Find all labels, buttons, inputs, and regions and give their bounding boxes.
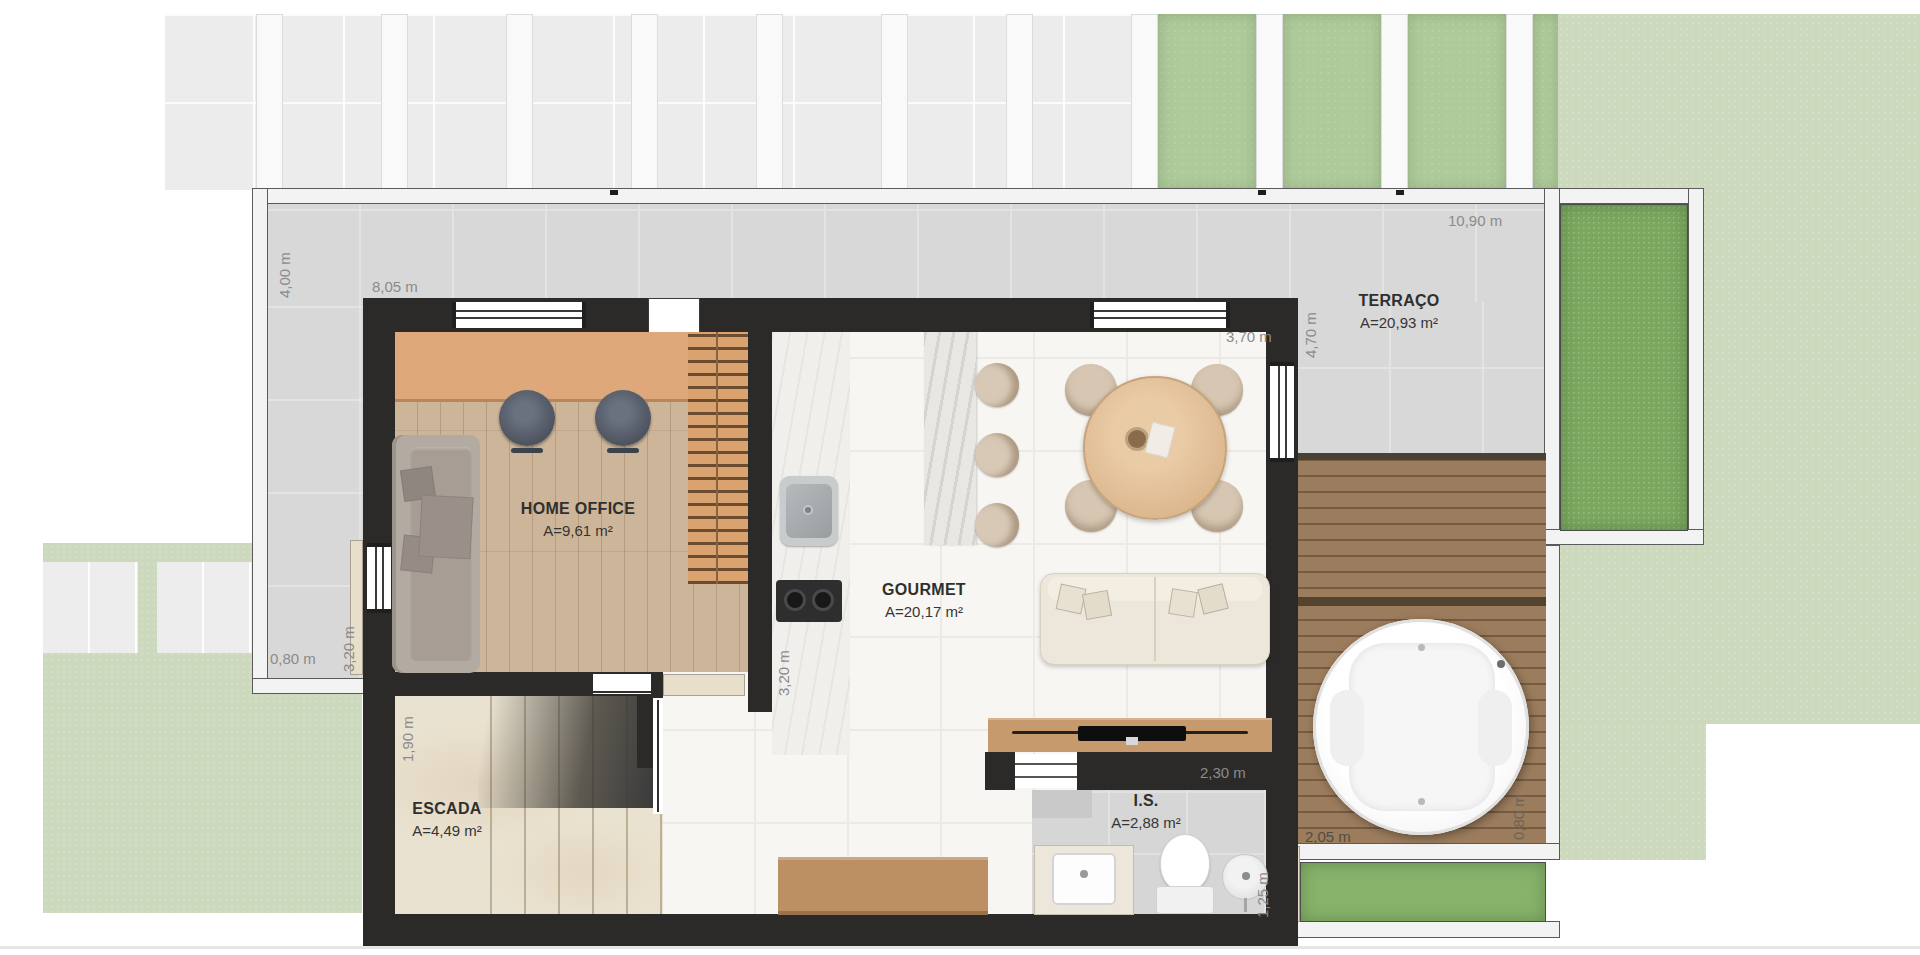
dim-front-wall: 8,05 m [372, 278, 418, 295]
office-chair-base [511, 448, 543, 453]
fence-pillar [256, 14, 283, 190]
stair-descent-shadow [478, 696, 663, 808]
toilet-tank [1156, 886, 1214, 914]
jacuzzi-seat-well [1349, 643, 1495, 811]
fence-pillar [631, 14, 658, 190]
dim-terrace-right: 4,70 m [1302, 296, 1319, 358]
glass-door-pane [657, 700, 659, 812]
room-area: A=2,88 m² [1111, 814, 1181, 831]
hall-sideboard [778, 857, 988, 915]
cooktop-burner [784, 589, 806, 611]
grass-frame-right [1688, 188, 1704, 545]
living-sofa-split [1154, 577, 1156, 661]
dim-escada-left: 1,90 m [399, 700, 416, 762]
deck-seam [1298, 597, 1546, 606]
lot-frame-top [252, 188, 1704, 204]
grass-panel [1560, 204, 1688, 531]
wall-bathroom-top-b [1077, 752, 1298, 790]
shower-knob [1242, 872, 1250, 880]
door-deck-access [1270, 362, 1294, 462]
fence-pillar [1381, 14, 1408, 190]
door-leaf-escada [593, 691, 651, 693]
sink-faucet [1080, 870, 1088, 878]
office-chair [595, 390, 651, 446]
fence-pillar [756, 14, 783, 190]
lot-frame-mid [1544, 188, 1560, 545]
room-label-home-office: HOME OFFICE A=9,61 m² [521, 500, 635, 539]
dim-terrace-left: 4,00 m [276, 218, 293, 298]
bar-stool [975, 433, 1019, 477]
room-area: A=9,61 m² [521, 522, 635, 539]
wall-kitchen-divider [748, 332, 772, 712]
bathroom-entry-step [1032, 790, 1092, 818]
survey-tick [610, 190, 618, 195]
office-chair [499, 390, 555, 446]
vanity-sink [1052, 853, 1116, 905]
deck-frame-right [1544, 545, 1560, 860]
dim-is-width: 2,30 m [1200, 764, 1246, 781]
sofa-blanket [418, 495, 473, 560]
fence-pillar [381, 14, 408, 190]
hedge-block [1158, 14, 1256, 190]
survey-tick [1258, 190, 1266, 195]
room-name: TERRAÇO [1358, 292, 1439, 310]
fence-pillar [1131, 14, 1158, 190]
fence-pillar [1506, 14, 1533, 190]
room-name: HOME OFFICE [521, 500, 635, 518]
dim-kitchen: 3,20 m [775, 630, 792, 696]
room-label-gourmet: GOURMET A=20,17 m² [882, 581, 966, 620]
deck-frame-bottom [1294, 843, 1560, 860]
office-desk [395, 332, 690, 402]
jacuzzi-seat [1478, 690, 1512, 766]
planter-frame-bottom [1294, 921, 1560, 938]
room-label-escada: ESCADA A=4,49 m² [412, 800, 482, 839]
fence-pillar [1256, 14, 1283, 190]
jacuzzi-seat [1330, 690, 1364, 766]
shower-stem [1244, 898, 1247, 912]
right-lawn-lower [1558, 724, 1706, 860]
toilet-bowl [1160, 834, 1210, 892]
jacuzzi-control [1497, 660, 1505, 668]
left-paver-pad [43, 562, 138, 653]
wall-left [363, 298, 395, 948]
tv-stand-dot [1126, 737, 1138, 745]
lot-frame-bottom-left [252, 678, 364, 694]
wall-bottom [363, 914, 1298, 948]
room-label-is: I.S. A=2,88 m² [1111, 792, 1181, 831]
dim-lot-top-width: 10,90 m [1448, 212, 1502, 229]
office-chair-base [607, 448, 639, 453]
hedge-block [1283, 14, 1381, 190]
cooktop-burner [812, 589, 834, 611]
jacuzzi-jet [1418, 644, 1425, 651]
sofa-pillow [1168, 588, 1198, 618]
fence-pillar [881, 14, 908, 190]
door-gap-bathroom [1015, 754, 1077, 788]
dim-gourmet-top: 3,70 m [1226, 328, 1272, 345]
dim-deck-right: 0,80 m [1510, 782, 1527, 840]
survey-tick [1396, 190, 1404, 195]
room-name: I.S. [1111, 792, 1181, 810]
window-gourmet [1090, 302, 1230, 328]
fence-pillar [1006, 14, 1033, 190]
dim-patio-width: 0,80 m [270, 650, 316, 667]
hedge-block [1533, 14, 1558, 190]
dim-is-right: 1,25 m [1254, 862, 1271, 918]
room-area: A=20,93 m² [1358, 314, 1439, 331]
jacuzzi-jet [1418, 798, 1425, 805]
sink-drain [803, 505, 813, 515]
bar-stool [975, 503, 1019, 547]
bar-stool [975, 363, 1019, 407]
terrace-area [268, 204, 1544, 302]
fence-pillar [506, 14, 533, 190]
room-area: A=20,17 m² [882, 603, 966, 620]
page-bottom-edge [0, 946, 1920, 949]
room-name: GOURMET [882, 581, 966, 599]
floor-plan: TERRAÇO A=20,93 m² HOME OFFICE A=9,61 m²… [0, 0, 1920, 955]
window-escada-west [367, 543, 391, 613]
slatted-shelf [688, 332, 748, 584]
hall-door-sill [663, 674, 745, 696]
room-name: ESCADA [412, 800, 482, 818]
planter-strip [1300, 862, 1546, 922]
hedge-block [1408, 14, 1506, 190]
sofa-pillow [1082, 590, 1112, 620]
wall-bathroom-top-a [985, 752, 1015, 790]
window-home-office [452, 302, 586, 328]
table-centerpiece-plant [1128, 430, 1146, 448]
bar-counter [924, 332, 976, 545]
shelf-rail [716, 332, 718, 584]
room-label-terraco: TERRAÇO A=20,93 m² [1358, 292, 1439, 331]
grass-frame-bottom [1544, 529, 1704, 545]
left-paver-pad [157, 562, 252, 653]
lot-frame-left [252, 188, 268, 694]
room-area: A=4,49 m² [412, 822, 482, 839]
dim-deck-bottom: 2,05 m [1305, 828, 1351, 845]
dim-patio-left: 3,20 m [340, 606, 357, 672]
